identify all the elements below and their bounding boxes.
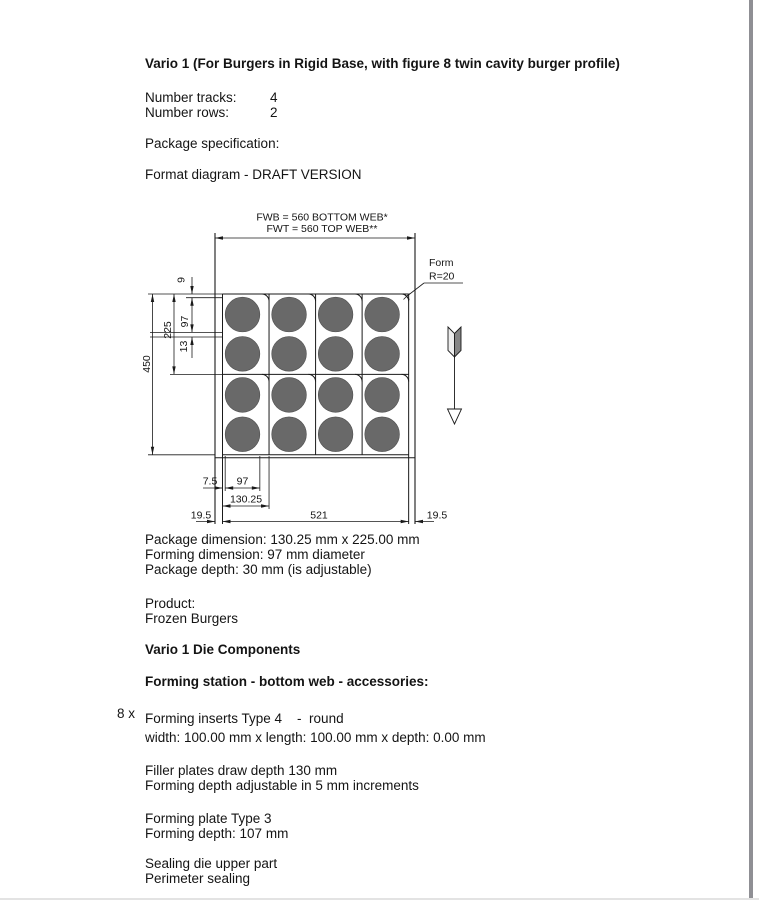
dim-edge-to-cavity: 9 — [176, 277, 188, 283]
insert-line1: Forming inserts Type 4 - round — [145, 711, 344, 726]
dim-cavity-left-offset: 7.5 — [203, 476, 218, 488]
dim-package-width: 130.25 — [230, 494, 262, 506]
dim-package-height: 225 — [162, 321, 174, 339]
fwt-label: FWT = 560 TOP WEB** — [267, 223, 378, 235]
cavity-circle — [272, 337, 307, 372]
plate-line1: Forming plate Type 3 — [145, 811, 272, 826]
cavity-circle — [272, 378, 307, 413]
dim-cavity-gap: 13 — [178, 341, 190, 353]
form-radius-arc — [262, 374, 269, 381]
product-label: Product: — [145, 596, 195, 611]
dim-forming-area-width: 521 — [310, 510, 328, 522]
form-radius-arc — [402, 374, 409, 381]
sealing-line1: Sealing die upper part — [145, 856, 277, 871]
cavity-circle — [365, 297, 400, 332]
rows-label: Number rows: — [145, 105, 270, 120]
cavity-circle — [318, 337, 353, 372]
cavity-circle — [318, 378, 353, 413]
cavity-circle — [365, 337, 400, 372]
product-value: Frozen Burgers — [145, 611, 238, 626]
dim-cavity-diameter-horizontal: 97 — [237, 476, 249, 488]
form-radius-arc — [308, 374, 315, 381]
tracks-label: Number tracks: — [145, 90, 270, 105]
insert-quantity: 8 x — [117, 706, 135, 721]
package-specification-label: Package specification: — [145, 136, 279, 151]
form-radius-arc — [262, 294, 269, 301]
form-radius-arc — [355, 294, 362, 301]
format-diagram: FWB = 560 BOTTOM WEB* FWT = 560 TOP WEB*… — [140, 200, 480, 530]
package-depth-line: Package depth: 30 mm (is adjustable) — [145, 562, 372, 577]
plate-line2: Forming depth: 107 mm — [145, 826, 288, 841]
sealing-line2: Perimeter sealing — [145, 871, 250, 886]
package-dimension-line: Package dimension: 130.25 mm x 225.00 mm — [145, 532, 420, 547]
cavity-circle — [225, 417, 260, 452]
document-page: Vario 1 (For Burgers in Rigid Base, with… — [0, 0, 759, 900]
cavity-circle — [365, 417, 400, 452]
filler-line1: Filler plates draw depth 130 mm — [145, 763, 337, 778]
spec-row-rows: Number rows:2 — [145, 105, 278, 120]
cavity-circle — [318, 297, 353, 332]
page-title: Vario 1 (For Burgers in Rigid Base, with… — [145, 56, 620, 71]
form-radius-label: R=20 — [429, 271, 455, 283]
forming-dimension-line: Forming dimension: 97 mm diameter — [145, 547, 365, 562]
cavity-circle — [272, 297, 307, 332]
fwb-label: FWB = 560 BOTTOM WEB* — [256, 212, 387, 224]
cavity-circle — [225, 297, 260, 332]
rows-value: 2 — [270, 105, 278, 120]
forming-station-heading: Forming station - bottom web - accessori… — [145, 674, 429, 689]
tracks-value: 4 — [270, 90, 278, 105]
cavity-circle — [225, 337, 260, 372]
die-components-heading: Vario 1 Die Components — [145, 642, 300, 657]
form-radius-arc — [308, 294, 315, 301]
insert-line2: width: 100.00 mm x length: 100.00 mm x d… — [145, 730, 486, 745]
form-label: Form — [429, 257, 454, 269]
dim-total-height: 450 — [141, 355, 153, 373]
dim-cavity-diameter-vertical: 97 — [179, 316, 191, 328]
scrollbar-track[interactable] — [749, 0, 753, 900]
cavity-circle — [225, 378, 260, 413]
cavity-circle — [318, 417, 353, 452]
cavity-circle — [365, 378, 400, 413]
dim-web-margin-right: 19.5 — [427, 510, 448, 522]
form-radius-arc — [355, 374, 362, 381]
format-diagram-label: Format diagram - DRAFT VERSION — [145, 167, 362, 182]
cavity-circle — [272, 417, 307, 452]
machine-direction-arrow — [448, 327, 462, 424]
spec-row-tracks: Number tracks:4 — [145, 90, 278, 105]
dim-web-margin-left: 19.5 — [191, 510, 212, 522]
filler-line2: Forming depth adjustable in 5 mm increme… — [145, 778, 419, 793]
